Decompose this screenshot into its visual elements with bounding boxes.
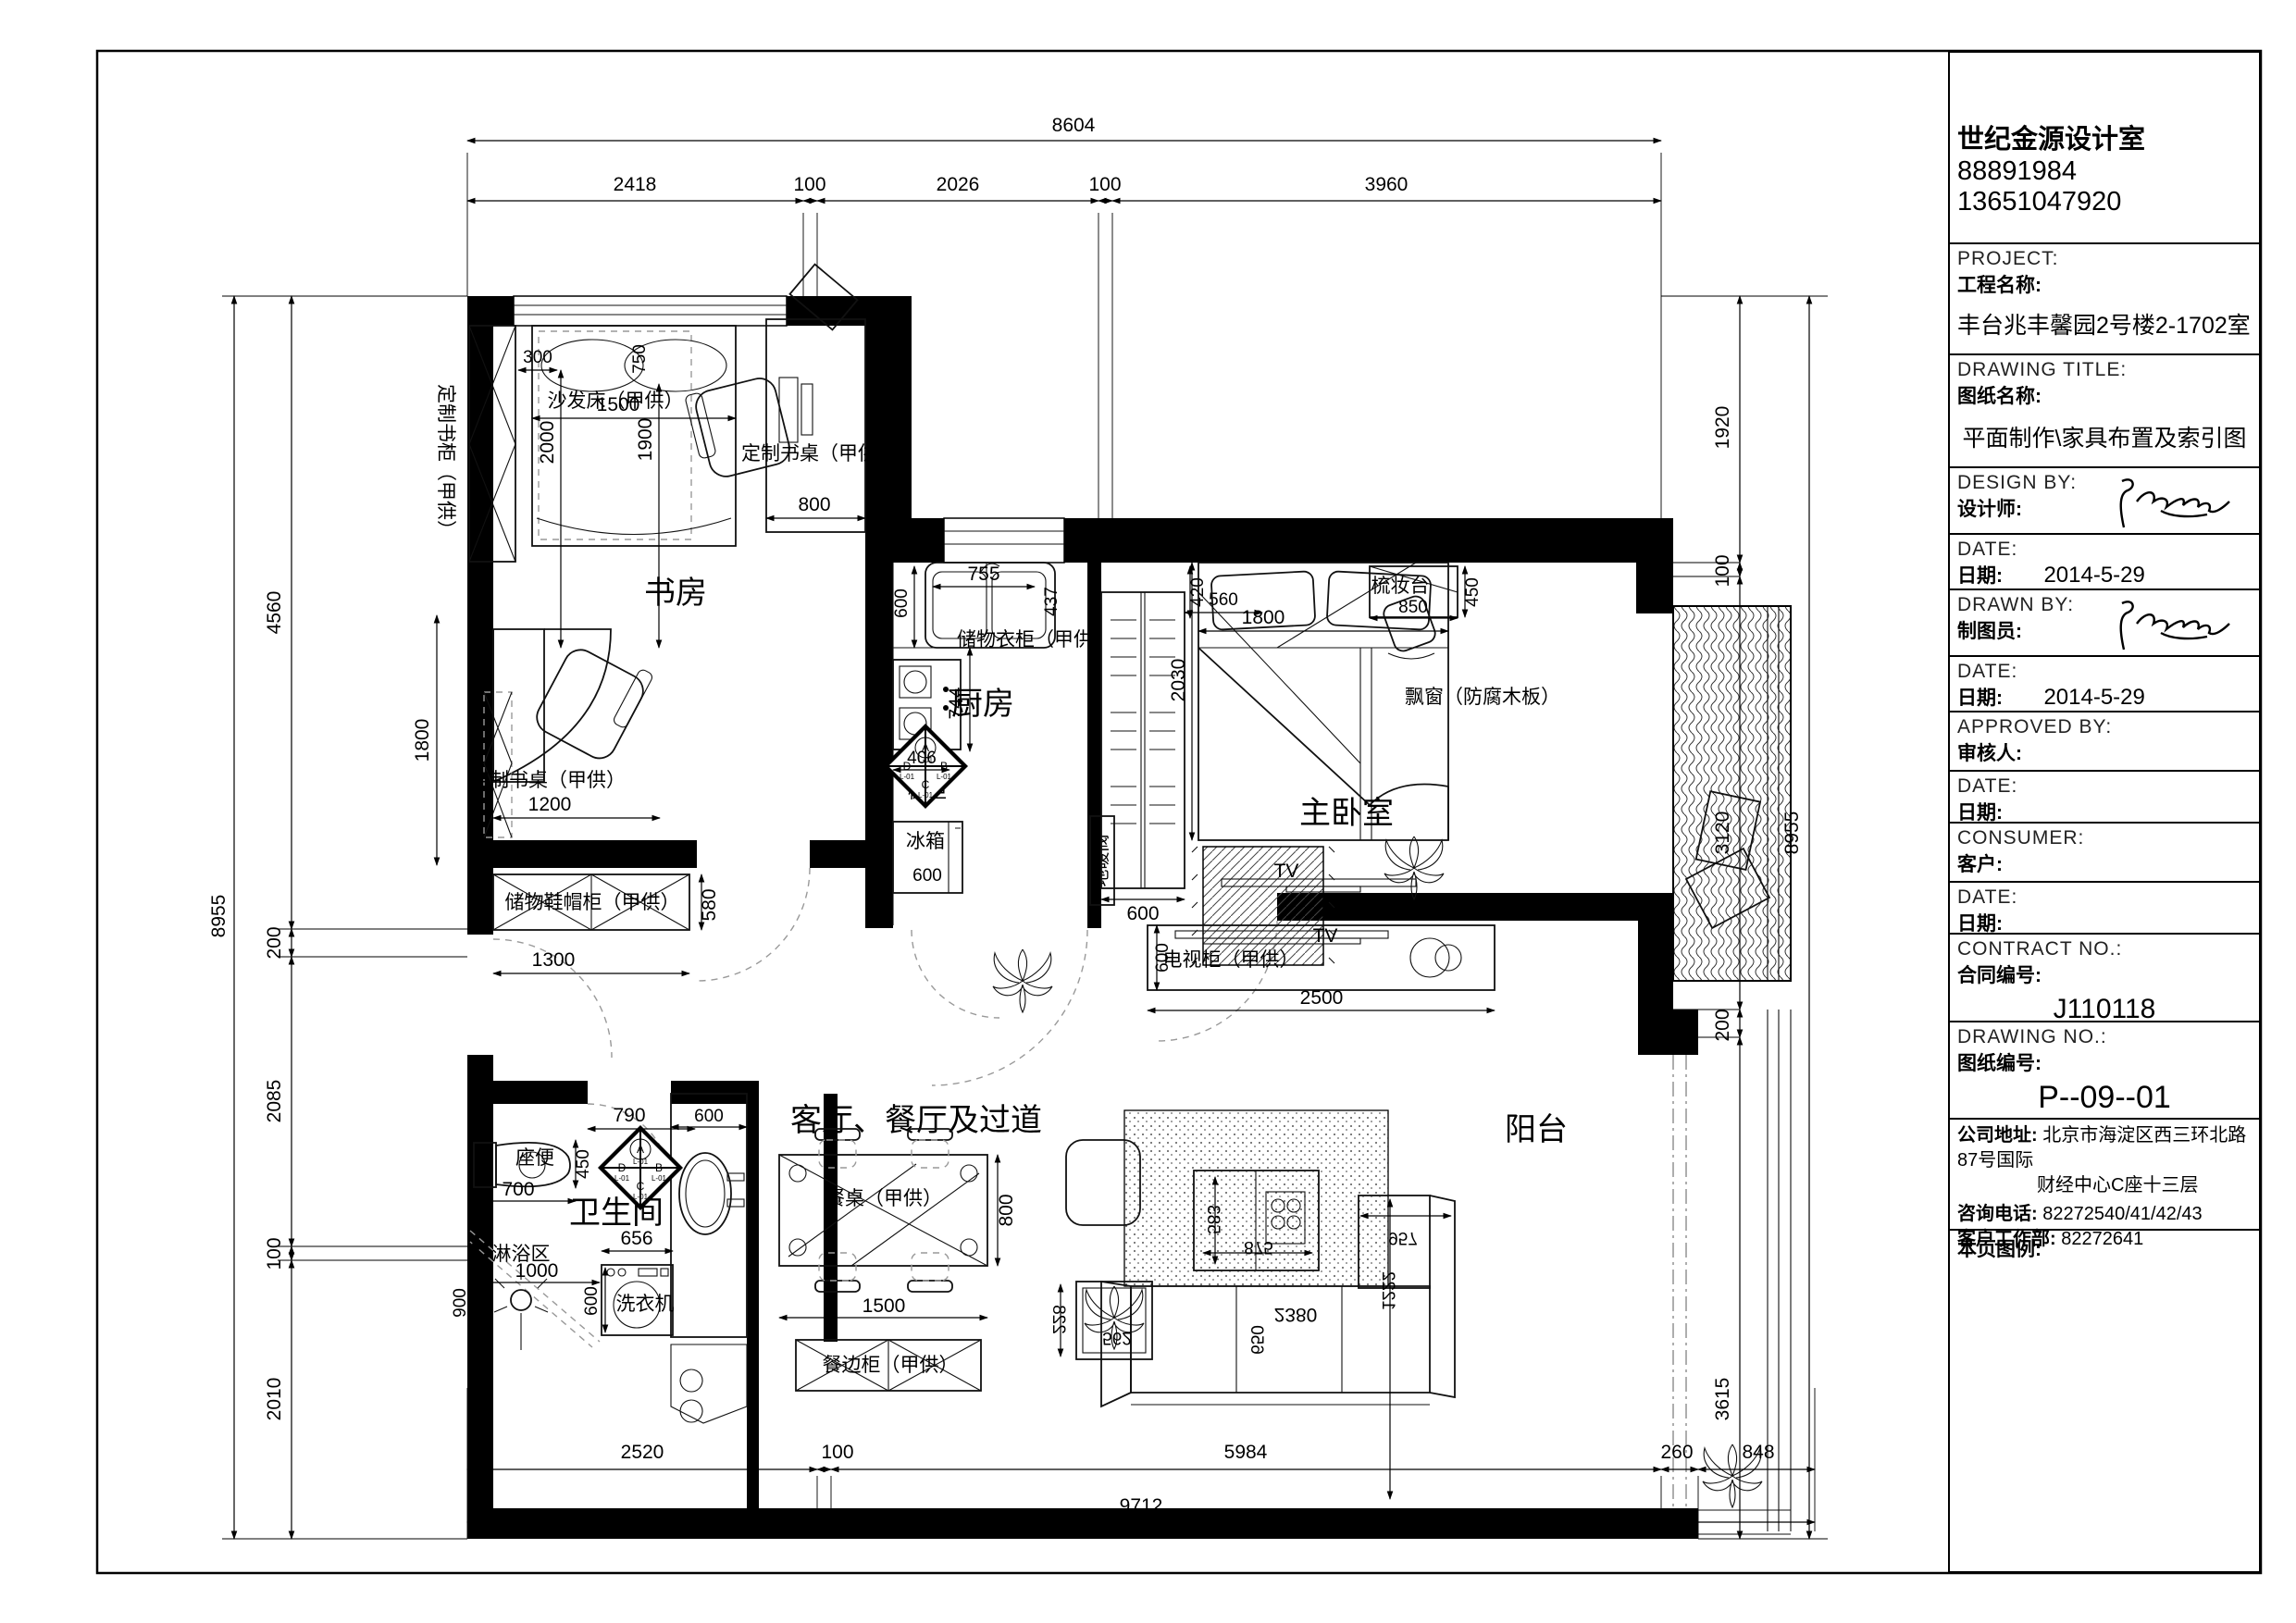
dim-bath-656: 656 — [620, 1228, 652, 1249]
dim-study-750: 750 — [630, 344, 650, 374]
dim-kitchen-437: 437 — [1042, 587, 1061, 616]
dim-bottom-total: 9712 — [1120, 1495, 1163, 1517]
dim-right-0: 1920 — [1712, 406, 1733, 450]
dim-washer-600: 600 — [582, 1286, 602, 1316]
date2-label-zh: 日期: — [1957, 688, 2003, 709]
dim-study-800: 800 — [798, 494, 830, 515]
dim-bottom-3: 260 — [1660, 1442, 1693, 1463]
dim-study-1300: 1300 — [532, 949, 576, 971]
dim-chaise-957: 957 — [1388, 1228, 1418, 1247]
dim-top-4: 3960 — [1365, 174, 1409, 195]
tb-design-by: DESIGN BY: 设计师: — [1950, 468, 2259, 535]
label-desk-top: 定制书桌（甲供） — [741, 443, 897, 465]
dim-shower-1000: 1000 — [515, 1260, 559, 1282]
label-desk-left: 定制书桌（甲供） — [470, 770, 626, 791]
contract-no: J110118 — [1957, 994, 2252, 1025]
date1-label-zh: 日期: — [1957, 565, 2003, 587]
dim-coffee-875: 875 — [1244, 1237, 1273, 1257]
drafter-signature — [2105, 596, 2244, 653]
project-label-en: PROJECT: — [1957, 248, 2252, 270]
dim-bottom-1: 100 — [821, 1442, 853, 1463]
tb-drawing-no: DRAWING NO.: 图纸编号: P--09--01 — [1950, 1022, 2259, 1120]
approved-label-en: APPROVED BY: — [1957, 716, 2252, 738]
tb-drawing-title: DRAWING TITLE: 图纸名称: 平面制作\家具布置及索引图 — [1950, 355, 2259, 468]
dim-left-2: 2085 — [264, 1080, 285, 1123]
dining-set — [779, 1155, 987, 1266]
dim-right-2: 3120 — [1712, 811, 1733, 855]
dim-dresser-850: 850 — [1398, 598, 1428, 617]
dim-tv-600: 600 — [1153, 943, 1173, 973]
dim-bottom-2: 5984 — [1224, 1442, 1268, 1463]
dim-bottom-0: 2520 — [621, 1442, 664, 1463]
dim-study-580: 580 — [699, 888, 720, 921]
sofa-zone — [1066, 1110, 1455, 1406]
label-dining-table: 餐桌（甲供） — [825, 1188, 942, 1209]
label-bookcase-left: 定制书柜（甲供） — [435, 384, 456, 539]
dim-study-1500: 1500 — [597, 394, 640, 415]
dim-bath-790: 790 — [613, 1105, 645, 1126]
dim-right-3: 200 — [1712, 1009, 1733, 1041]
company-phone1: 88891984 — [1957, 156, 2252, 187]
drawing-title: 平面制作\家具布置及索引图 — [1957, 420, 2252, 453]
dim-coffee-583: 583 — [1203, 1205, 1222, 1234]
dim-bed-2030: 2030 — [1168, 659, 1189, 702]
sheet-frame — [97, 51, 2261, 1573]
label-washer: 洗衣机 — [616, 1294, 675, 1315]
drawing-sheet: A L-01 B L-01 C L-01 D L-01 — [0, 0, 2296, 1623]
dim-fridge-600h: 600 — [912, 866, 942, 886]
dim-sidetable-562: 562 — [1102, 1328, 1132, 1347]
tb-date4: DATE: 日期: — [1950, 883, 2259, 935]
dim-chain-left: 8955 4560 200 2085 100 2010 — [208, 296, 467, 1539]
bay-window — [1673, 606, 1791, 981]
dim-fridge-600v: 600 — [869, 844, 888, 873]
label-wardrobe: 储物衣柜（甲供） — [957, 629, 1112, 650]
designer-signature — [2105, 474, 2244, 531]
project-label-zh: 工程名称: — [1957, 270, 2252, 298]
room-balcony: 阳台 — [1505, 1112, 1568, 1147]
dim-chaise-1222: 1222 — [1378, 1271, 1397, 1310]
dtitle-label-en: DRAWING TITLE: — [1957, 359, 2252, 381]
date1-value: 2014-5-29 — [2043, 563, 2144, 588]
dim-study-1200: 1200 — [528, 794, 572, 815]
dim-study-1800: 1800 — [412, 719, 433, 762]
label-toilet: 座便 — [515, 1147, 554, 1169]
project-name: 丰台兆丰馨园2号楼2-1702室 — [1957, 307, 2252, 341]
label-tv-bedroom: TV — [1274, 861, 1299, 882]
date4-label-zh: 日期: — [1957, 909, 2252, 936]
tb-date3: DATE: 日期: — [1950, 772, 2259, 824]
dim-kitchen-406: 406 — [907, 749, 937, 768]
date4-label-en: DATE: — [1957, 886, 2252, 909]
dim-right-total: 8955 — [1781, 811, 1803, 855]
date3-label-en: DATE: — [1957, 775, 2252, 798]
dim-left-1: 200 — [264, 926, 285, 959]
dim-top-1: 100 — [793, 174, 825, 195]
tb-date2: DATE: 日期: 2014-5-29 — [1950, 657, 2259, 712]
addr-line2: 财经中心C座十三层 — [1957, 1173, 2252, 1198]
legend-label: 本页图例: — [1957, 1234, 2252, 1262]
contract-label-en: CONTRACT NO.: — [1957, 938, 2252, 960]
dim-left-3: 100 — [264, 1237, 285, 1270]
approved-label-zh: 审核人: — [1957, 738, 2252, 766]
dim-closet-600: 600 — [1126, 903, 1159, 924]
label-tv-cabinet: 电视柜（甲供） — [1163, 949, 1299, 971]
dim-study-1900: 1900 — [635, 418, 656, 462]
label-fridge: 冰箱 — [906, 831, 945, 852]
dno-label-en: DRAWING NO.: — [1957, 1026, 2252, 1048]
tb-drawn-by: DRAWN BY: 制图员: — [1950, 590, 2259, 657]
label-dresser: 梳妆台 — [1371, 576, 1430, 597]
tb-legend: 本页图例: — [1950, 1231, 2259, 1571]
tel-value: 82272540/41/42/43 — [2042, 1204, 2202, 1224]
label-sideboard: 餐边柜（甲供） — [823, 1355, 959, 1376]
room-study: 书房 — [644, 576, 707, 611]
dim-basin-600: 600 — [694, 1107, 724, 1126]
dim-right-4: 3615 — [1712, 1378, 1733, 1421]
dim-shower-900: 900 — [451, 1288, 470, 1318]
company-phone2: 13651047920 — [1957, 187, 2252, 217]
dim-top-total: 8604 — [1052, 115, 1096, 136]
dim-study-300: 300 — [523, 348, 552, 367]
dim-left-0: 4560 — [264, 591, 285, 635]
dtitle-label-zh: 图纸名称: — [1957, 381, 2252, 409]
room-bedroom: 主卧室 — [1299, 796, 1394, 831]
windows — [514, 296, 1064, 563]
tb-date1: DATE: 日期: 2014-5-29 — [1950, 535, 2259, 590]
tb-company: 世纪金源设计室 88891984 13651047920 — [1950, 53, 2259, 244]
label-bay-window: 飘窗（防腐木板） — [1405, 687, 1560, 708]
dim-dining-1500: 1500 — [863, 1295, 906, 1317]
dim-sofa-2380: 2380 — [1274, 1304, 1318, 1325]
dim-bottom-4: 848 — [1742, 1442, 1774, 1463]
dim-tv-2500: 2500 — [1300, 987, 1344, 1009]
dno-label-zh: 图纸编号: — [1957, 1048, 2252, 1076]
date3-label-zh: 日期: — [1957, 798, 2252, 825]
tb-approved: APPROVED BY: 审核人: — [1950, 712, 2259, 772]
label-shoe-cabinet: 储物鞋帽柜（甲供） — [505, 892, 680, 913]
dim-bath-450: 450 — [574, 1149, 593, 1179]
consumer-label-zh: 客户: — [1957, 849, 2252, 877]
dim-sofa-650: 650 — [1247, 1325, 1266, 1355]
dim-sidetable-228: 228 — [1049, 1305, 1068, 1334]
label-tv-cabinet-tv: TV — [1313, 925, 1338, 947]
drawing-no: P--09--01 — [1957, 1080, 2252, 1116]
dim-kitchen-755: 755 — [967, 564, 999, 585]
tb-address: 公司地址: 北京市海淀区西三环北路87号国际 财经中心C座十三层 咨询电话: 8… — [1950, 1120, 2259, 1231]
dim-kitchen-744: 744 — [946, 687, 967, 719]
dim-right-1: 100 — [1712, 554, 1733, 587]
dim-bed-1800: 1800 — [1242, 607, 1285, 628]
dim-dresser-450: 450 — [1463, 577, 1483, 607]
dim-dining-800: 800 — [996, 1194, 1017, 1226]
date2-label-en: DATE: — [1957, 661, 2252, 683]
tel-label: 咨询电话: — [1957, 1204, 2038, 1224]
consumer-label-en: CONSUMER: — [1957, 827, 2252, 849]
tb-consumer: CONSUMER: 客户: — [1950, 824, 2259, 883]
room-living: 客厅、餐厅及过道 — [790, 1103, 1042, 1138]
tb-project: PROJECT: 工程名称: 丰台兆丰馨园2号楼2-1702室 — [1950, 244, 2259, 355]
dim-study-2000: 2000 — [537, 421, 558, 465]
date2-value: 2014-5-29 — [2043, 685, 2144, 710]
date1-label-en: DATE: — [1957, 539, 2252, 561]
dim-left-4: 2010 — [264, 1378, 285, 1421]
contract-label-zh: 合同编号: — [1957, 960, 2252, 988]
addr-label: 公司地址: — [1957, 1125, 2038, 1146]
title-block: 世纪金源设计室 88891984 13651047920 PROJECT: 工程… — [1948, 51, 2261, 1573]
company-name: 世纪金源设计室 — [1957, 118, 2252, 156]
dim-left-total: 8955 — [208, 895, 230, 938]
dim-chain-top: 8604 2418 100 2026 100 3960 — [467, 115, 1661, 563]
dim-kitchen-600: 600 — [892, 588, 912, 618]
dim-top-3: 100 — [1088, 174, 1121, 195]
dim-bath-700: 700 — [502, 1179, 534, 1200]
dim-top-0: 2418 — [614, 174, 657, 195]
dim-top-2: 2026 — [937, 174, 980, 195]
tb-contract: CONTRACT NO.: 合同编号: J110118 — [1950, 935, 2259, 1022]
